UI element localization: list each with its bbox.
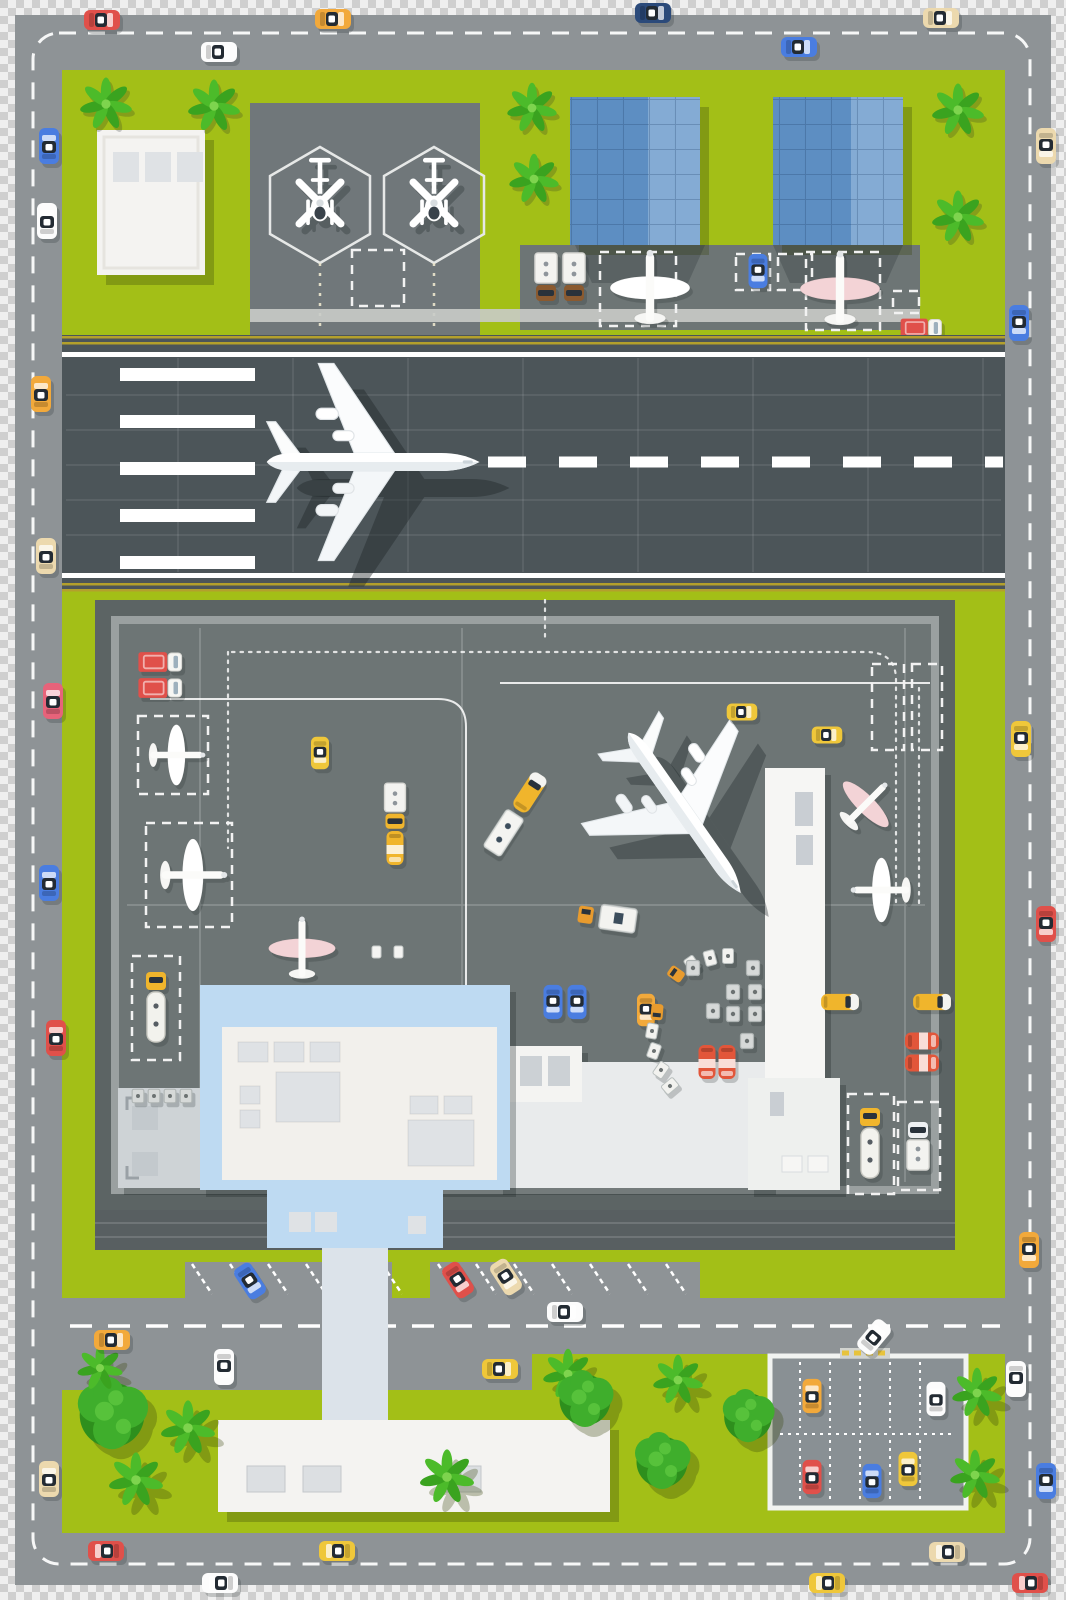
car <box>1036 1463 1056 1499</box>
service-building <box>218 1420 610 1512</box>
airport-bus <box>913 994 951 1010</box>
car <box>1006 1361 1026 1397</box>
van <box>544 985 563 1019</box>
car <box>727 704 758 721</box>
parked-car <box>863 1464 882 1498</box>
parking-lot <box>770 1348 966 1508</box>
car <box>88 1541 124 1561</box>
service-road <box>95 1210 955 1250</box>
car <box>1009 305 1029 341</box>
jet-bridge <box>795 792 813 826</box>
airport-illustration <box>0 0 1066 1600</box>
car <box>94 1330 130 1350</box>
car <box>311 737 329 769</box>
skylight <box>113 152 139 182</box>
fire-truck <box>901 319 942 338</box>
jet-bridge <box>796 835 813 865</box>
terminal-walkway <box>322 1248 388 1424</box>
parked-car <box>927 1382 946 1416</box>
fuel-tanker <box>860 1108 880 1178</box>
skylight <box>177 152 203 182</box>
fuel-tanker <box>905 1033 939 1050</box>
office-tower-blue <box>773 97 903 245</box>
car <box>929 1542 965 1562</box>
truck-trailer <box>387 831 404 865</box>
car <box>809 1573 845 1593</box>
car <box>1019 1232 1039 1268</box>
walkway-band <box>250 309 920 322</box>
car <box>635 3 671 23</box>
parked-car <box>803 1379 822 1413</box>
car <box>214 1349 234 1385</box>
car <box>1011 721 1031 757</box>
box-truck <box>563 253 585 301</box>
cargo-truck <box>138 652 181 672</box>
fuel-tanker <box>905 1055 939 1072</box>
car <box>749 254 768 288</box>
parked-car <box>803 1460 822 1494</box>
car <box>202 1573 238 1593</box>
white-warehouse <box>97 130 205 275</box>
parked-car <box>899 1452 918 1486</box>
car <box>319 1541 355 1561</box>
car <box>36 538 56 574</box>
box-truck <box>907 1122 929 1170</box>
box-truck <box>535 253 557 301</box>
cargo-truck <box>138 678 181 698</box>
airport-bus <box>821 994 859 1010</box>
car <box>812 727 843 744</box>
car <box>547 1302 583 1322</box>
car <box>1036 906 1056 942</box>
car <box>46 1020 66 1056</box>
car <box>43 683 63 719</box>
car <box>923 8 959 28</box>
fuel-tanker <box>719 1045 736 1079</box>
car <box>201 42 237 62</box>
car <box>39 865 59 901</box>
car <box>37 203 57 239</box>
car <box>39 1461 59 1497</box>
car <box>84 10 120 30</box>
fuel-tanker <box>146 972 166 1042</box>
car <box>781 37 817 57</box>
fuel-tanker <box>699 1045 716 1079</box>
car <box>482 1359 518 1379</box>
office-tower-blue <box>570 97 700 245</box>
skylight <box>145 152 171 182</box>
runway <box>62 335 1005 592</box>
car <box>31 376 51 412</box>
car <box>1036 128 1056 164</box>
terminal-lower-block <box>267 1185 443 1248</box>
car <box>315 9 351 29</box>
van <box>568 985 587 1019</box>
box-truck <box>385 783 406 829</box>
car <box>39 128 59 164</box>
terminal-main-building <box>200 985 510 1190</box>
apron <box>95 600 955 1210</box>
car <box>1012 1573 1048 1593</box>
